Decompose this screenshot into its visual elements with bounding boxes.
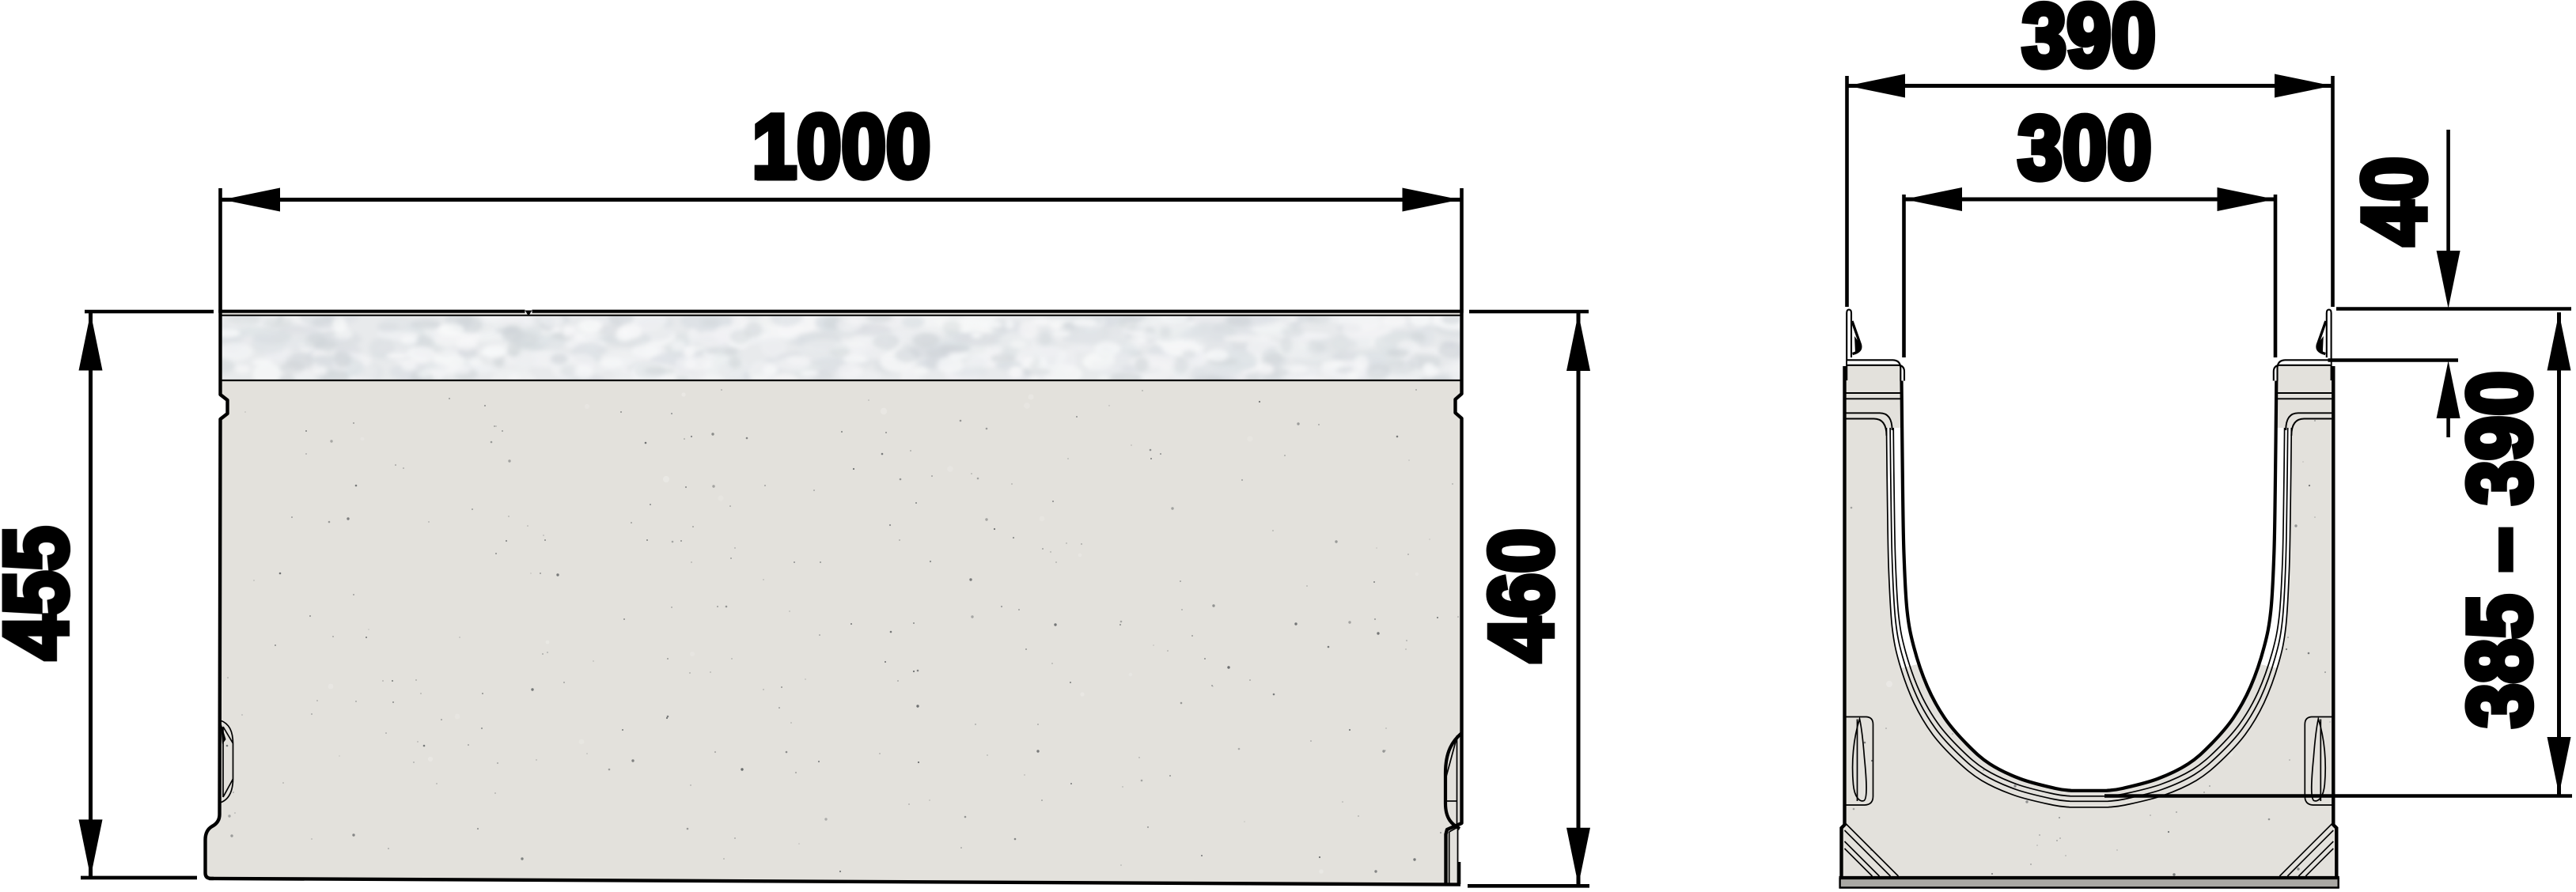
svg-text:300: 300 <box>2017 97 2151 198</box>
svg-text:455: 455 <box>0 526 86 660</box>
svg-text:390: 390 <box>2022 0 2156 85</box>
svg-text:385 – 390: 385 – 390 <box>2449 371 2550 728</box>
svg-text:1000: 1000 <box>752 96 931 197</box>
svg-text:40: 40 <box>2344 157 2445 246</box>
svg-text:460: 460 <box>1471 528 1571 662</box>
